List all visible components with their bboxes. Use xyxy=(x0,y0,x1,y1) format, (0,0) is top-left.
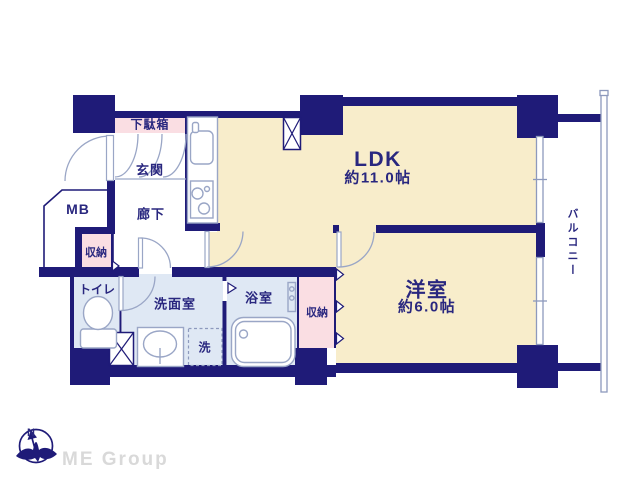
compass-north-label: N xyxy=(27,427,35,439)
floor-plan-drawing xyxy=(0,0,640,480)
hall-storage-label: 収納 xyxy=(85,244,107,260)
balcony-label: バルコニー xyxy=(564,208,580,278)
entrance-door xyxy=(65,136,114,182)
pipe-space-top xyxy=(284,118,301,150)
washroom-door xyxy=(139,238,171,268)
pillar-bottom-mid xyxy=(295,348,327,385)
washbasin xyxy=(138,328,184,367)
washer-label: 洗 xyxy=(198,339,211,356)
bird-logo xyxy=(16,442,57,462)
compass xyxy=(16,430,57,463)
pillar-top-left xyxy=(73,95,115,133)
kitchen-faucet xyxy=(193,123,199,133)
toilet-label: トイレ xyxy=(79,281,115,298)
meter-box-label: MB xyxy=(66,201,90,217)
bathroom-label: 浴室 xyxy=(245,288,273,307)
bathtub xyxy=(232,318,296,367)
kitchen-sink xyxy=(191,131,214,164)
pillar-top-mid xyxy=(300,95,343,135)
pillar-bottom-right xyxy=(517,345,558,388)
hallway-label: 廊下 xyxy=(137,204,165,223)
brand-logo-text: ME Group xyxy=(62,449,169,471)
stove xyxy=(191,181,214,218)
floor-plan: 下駄箱 玄関 廊下 MB 収納 トイレ 洗面室 浴室 洗 収納 LDK 約11.… xyxy=(0,0,640,480)
ldk-size-label: 約11.0帖 xyxy=(344,167,411,188)
balcony-rail xyxy=(601,93,607,392)
washroom-label: 洗面室 xyxy=(154,294,196,313)
pillar-bottom-left xyxy=(70,348,110,385)
entrance-label: 玄関 xyxy=(136,160,164,179)
western-storage-label: 収納 xyxy=(306,304,328,320)
shoe-cabinet-label: 下駄箱 xyxy=(130,116,169,133)
western-room-size-label: 約6.0帖 xyxy=(398,296,456,317)
pillar-top-right xyxy=(517,95,558,138)
